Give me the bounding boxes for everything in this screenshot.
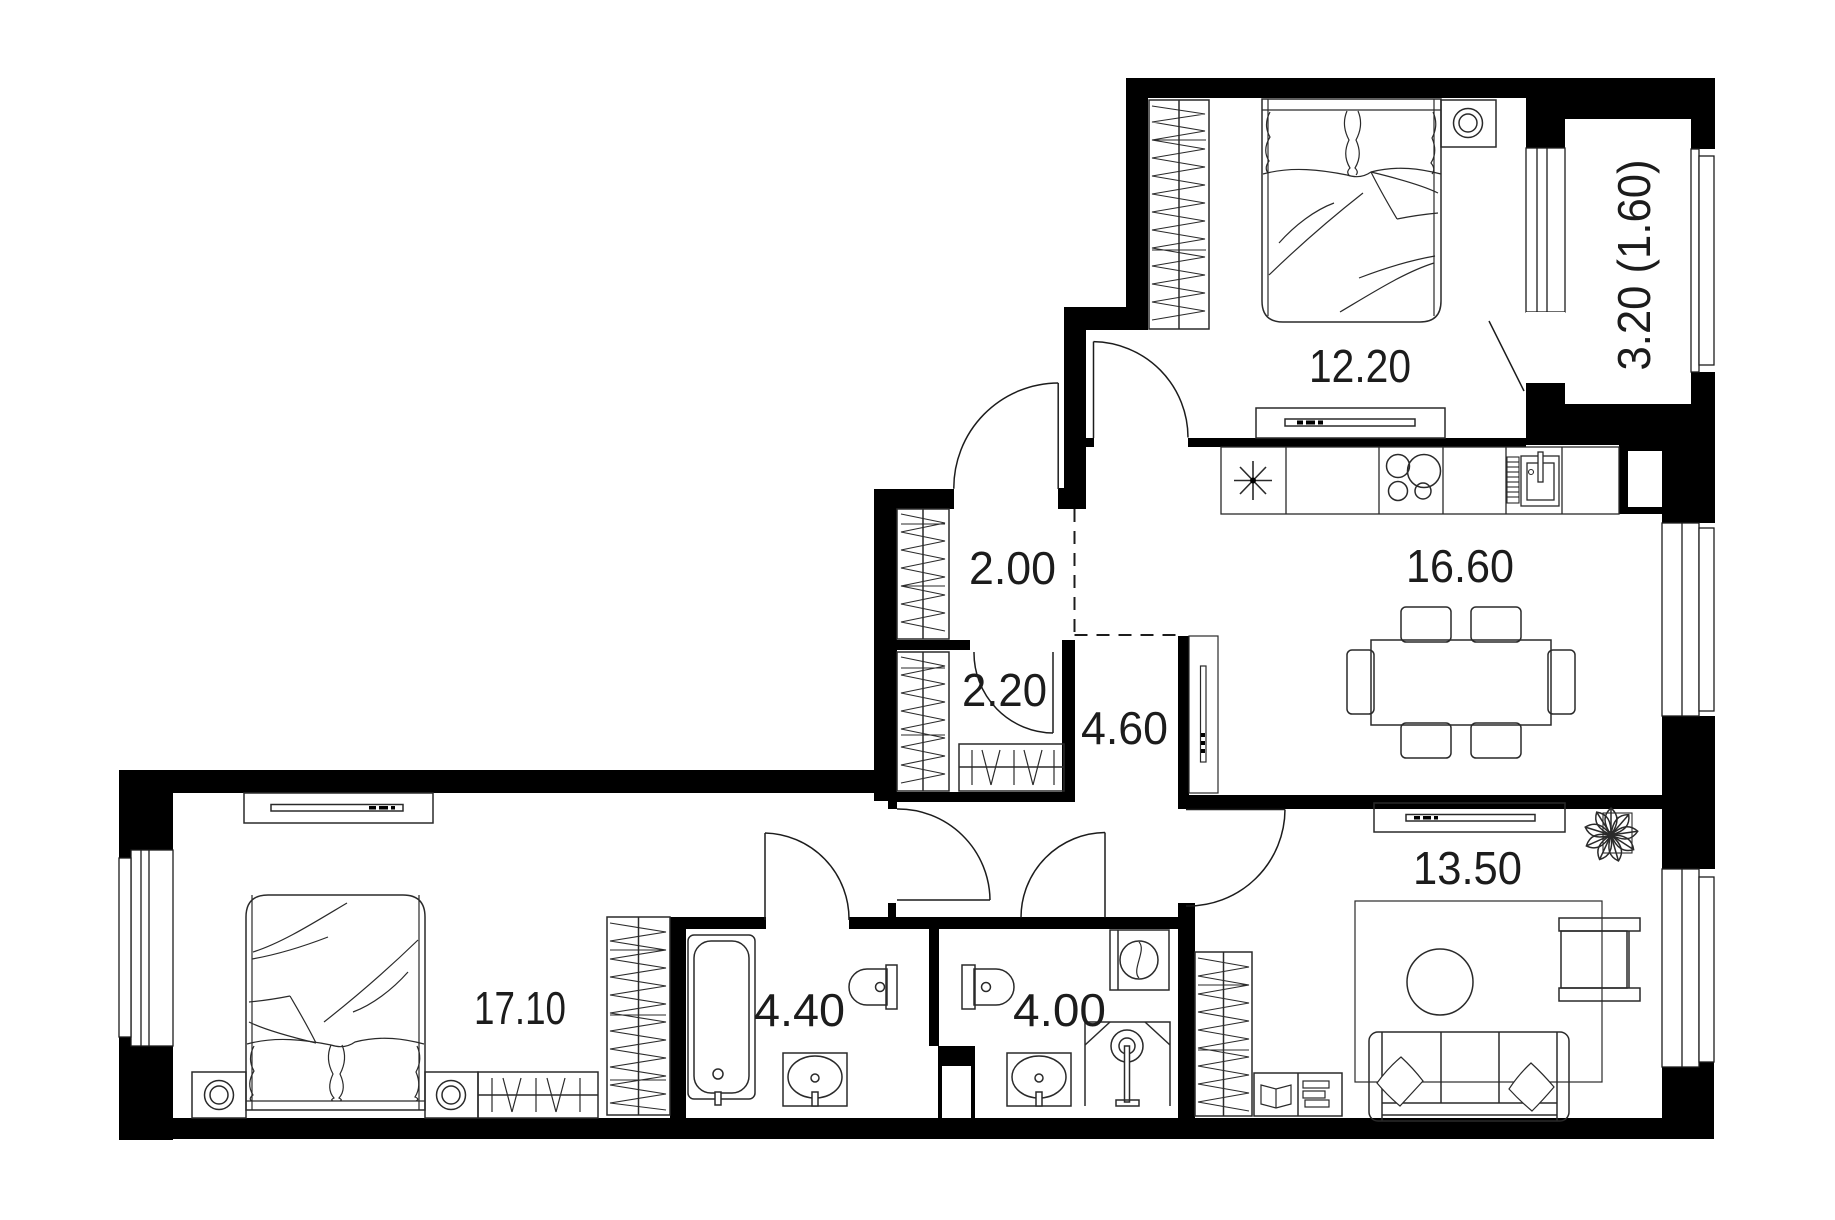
svg-text:3.20 (1.60): 3.20 (1.60) <box>1608 160 1660 371</box>
svg-text:4.40: 4.40 <box>754 984 845 1036</box>
svg-text:12.20: 12.20 <box>1309 340 1411 392</box>
svg-text:13.50: 13.50 <box>1413 842 1522 894</box>
svg-text:4.00: 4.00 <box>1013 984 1106 1036</box>
svg-text:2.00: 2.00 <box>969 542 1056 594</box>
svg-text:4.60: 4.60 <box>1081 702 1168 754</box>
svg-text:16.60: 16.60 <box>1406 540 1514 592</box>
svg-text:2.20: 2.20 <box>962 664 1047 716</box>
svg-text:17.10: 17.10 <box>474 982 566 1034</box>
